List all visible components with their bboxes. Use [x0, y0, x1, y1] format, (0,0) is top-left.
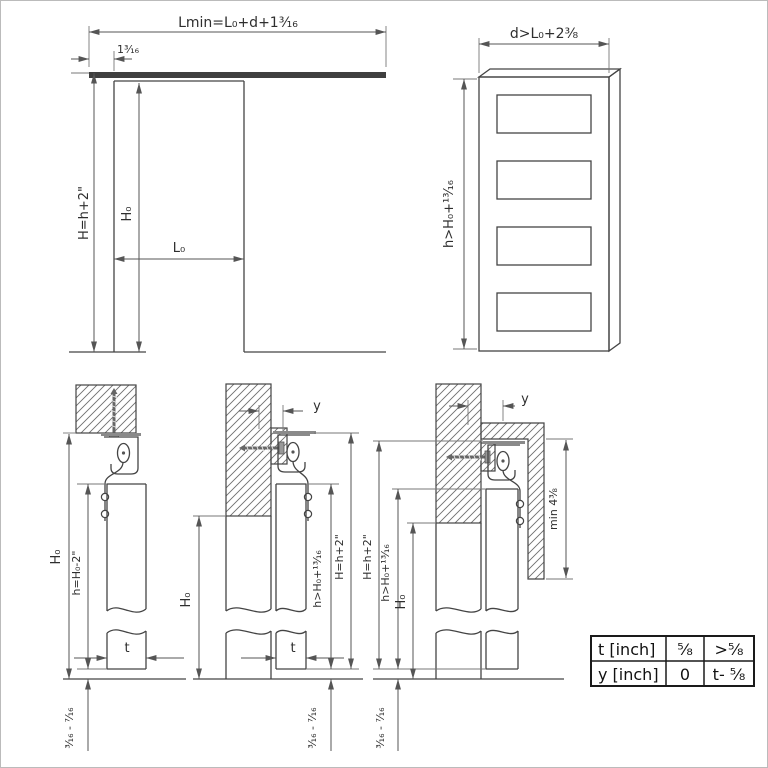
track-bar [89, 72, 386, 78]
dim-H-label: H=h+2" [333, 534, 346, 580]
wall-section [226, 516, 271, 679]
dim-y-label: y [313, 399, 321, 414]
table-cell-t-val2: >⁵⁄₈ [715, 640, 744, 659]
track-flange [101, 433, 141, 436]
figure-door-panel: d>L₀+2³⁄₈ h>H₀+¹³⁄₁₆ [442, 26, 620, 351]
dim-h-label: h>H₀+¹³⁄₁₆ [379, 544, 392, 602]
dim-H0-label: H₀ [394, 595, 409, 610]
door-top-face [479, 69, 620, 77]
dim-y-label: y [521, 392, 529, 407]
dim-t-label: t [290, 641, 295, 656]
dim-H0-label: H₀ [179, 593, 194, 608]
table-cell-y-val2: t- ⁵⁄₈ [713, 665, 746, 684]
figure-opening-elevation: Lmin=L₀+d+1³⁄₁₆ 1³⁄₁₆ H=h+2" H₀ L₀ [69, 15, 386, 352]
table-cell-y-header: y [inch] [598, 665, 659, 684]
table-cell-t-val1: ⁵⁄₈ [677, 640, 693, 659]
door-front-face [479, 77, 609, 351]
dim-lmin-label: Lmin=L₀+d+1³⁄₁₆ [178, 15, 298, 31]
dim-t-label: t [124, 641, 129, 656]
ceiling-block [76, 385, 136, 433]
door-panel-4 [497, 293, 591, 331]
wall-section [436, 523, 481, 679]
dim-h-label: h>H₀+¹³⁄₁₆ [442, 180, 457, 248]
door-panel-2 [497, 161, 591, 199]
spec-table: t [inch] ⁵⁄₈ >⁵⁄₈ y [inch] 0 t- ⁵⁄₈ [591, 636, 754, 686]
dim-L0-label: L₀ [173, 241, 185, 256]
dim-gap-label: ³⁄₁₆ - ⁷⁄₁₆ [306, 707, 319, 749]
opening-outline [69, 81, 386, 352]
dim-d-label: d>L₀+2³⁄₈ [510, 26, 579, 42]
technical-drawing-canvas: Lmin=L₀+d+1³⁄₁₆ 1³⁄₁₆ H=h+2" H₀ L₀ d>L₀+… [0, 0, 768, 768]
dim-gap-label: ³⁄₁₆ - ⁷⁄₁₆ [374, 707, 387, 749]
dim-H-label: H=h+2" [77, 186, 92, 240]
table-cell-t-header: t [inch] [598, 640, 655, 659]
wall-block [436, 384, 481, 523]
dim-h-label: h=H₀-2" [70, 551, 83, 596]
table-cell-y-val1: 0 [680, 665, 690, 684]
track-flange [483, 441, 525, 444]
door-side-face [609, 69, 620, 351]
dim-H0-label: H₀ [49, 550, 64, 565]
door-section [486, 489, 518, 669]
dim-H-label: H=h+2" [361, 534, 374, 580]
detail-fascia-mount: y min 4³⁄₈ H=h+2" h>H₀+¹³⁄₁₆ H₀ ³⁄₁₆ - ⁷… [361, 384, 573, 751]
dim-h-label: h>H₀+¹³⁄₁₆ [311, 550, 324, 608]
door-panel-1 [497, 95, 591, 133]
detail-ceiling-mount: H₀ h=H₀-2" t ³⁄₁₆ - ⁷⁄₁₆ [49, 385, 186, 751]
dim-gap-label: ³⁄₁₆ - ⁷⁄₁₆ [63, 707, 76, 749]
drawing-svg: Lmin=L₀+d+1³⁄₁₆ 1³⁄₁₆ H=h+2" H₀ L₀ d>L₀+… [1, 1, 767, 767]
dim-H0-label: H₀ [120, 207, 135, 222]
detail-wall-mount: y H₀ h>H₀+¹³⁄₁₆ H=h+2" t ³⁄₁₆ - ⁷⁄₁₆ [179, 384, 363, 751]
door-panel-3 [497, 227, 591, 265]
track-flange [273, 431, 316, 434]
dim-offset-label: 1³⁄₁₆ [117, 43, 140, 56]
dim-min-label: min 4³⁄₈ [547, 487, 560, 529]
